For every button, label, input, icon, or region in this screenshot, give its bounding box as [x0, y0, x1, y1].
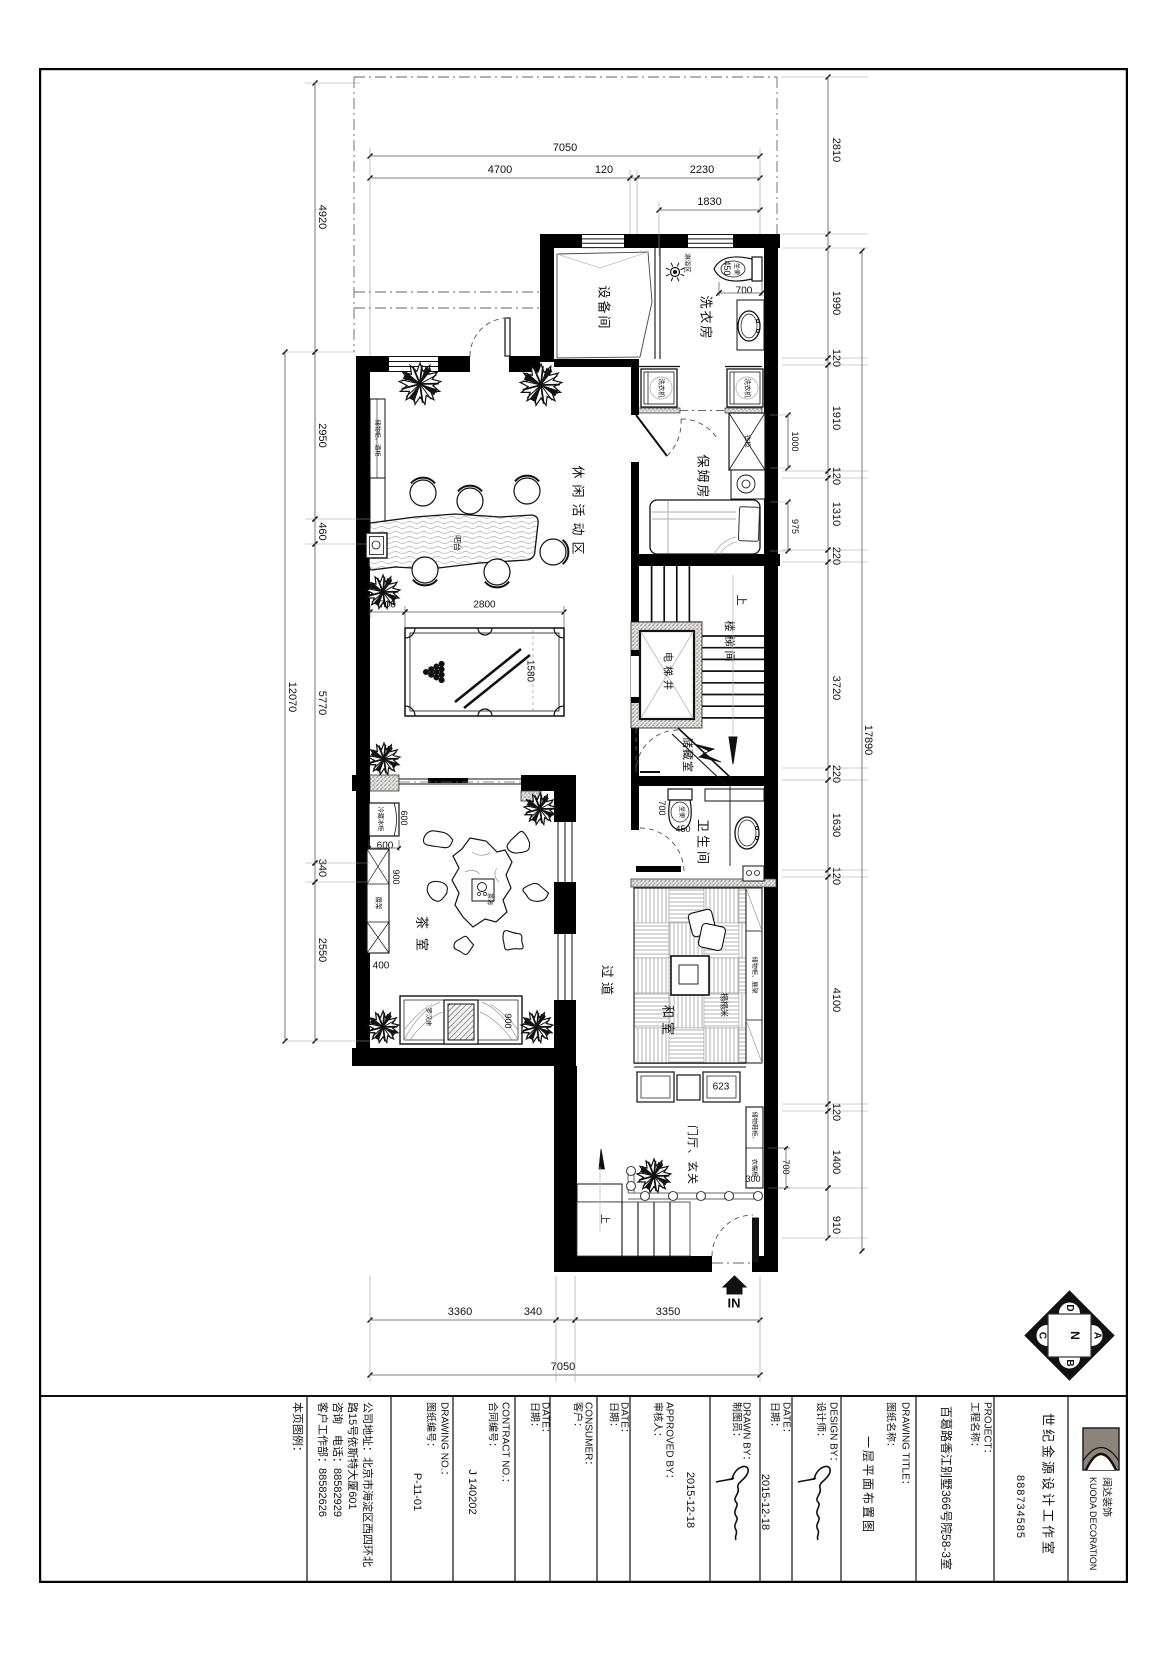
svg-text:客户工作部：88582626: 客户工作部：88582626	[316, 1402, 330, 1517]
svg-text:3360: 3360	[448, 1306, 472, 1318]
svg-text:340: 340	[524, 1306, 542, 1318]
svg-text:900: 900	[503, 1013, 513, 1028]
svg-text:1990: 1990	[830, 291, 842, 315]
svg-text:2800: 2800	[473, 600, 496, 611]
svg-text:坐便: 坐便	[678, 806, 686, 818]
svg-text:900: 900	[391, 869, 401, 884]
svg-text:坐便: 坐便	[733, 263, 741, 275]
svg-text:审核人：: 审核人：	[652, 1402, 665, 1442]
svg-text:700: 700	[736, 286, 753, 297]
svg-text:120: 120	[830, 467, 842, 485]
svg-text:DATE：: DATE：	[540, 1402, 551, 1438]
svg-text:1400: 1400	[830, 1150, 842, 1174]
svg-text:和室: 和室	[661, 1005, 676, 1039]
svg-text:2230: 2230	[690, 164, 714, 176]
svg-text:700: 700	[657, 800, 667, 815]
svg-text:120: 120	[830, 867, 842, 885]
svg-text:门厅、玄关: 门厅、玄关	[686, 1125, 700, 1185]
svg-text:设计师：: 设计师：	[815, 1402, 828, 1442]
svg-text:客户：: 客户：	[572, 1402, 585, 1432]
svg-text:B: B	[1064, 1359, 1075, 1366]
svg-text:A: A	[1092, 1332, 1103, 1339]
svg-text:榻榻米: 榻榻米	[720, 993, 730, 1017]
svg-text:制图员：: 制图员：	[731, 1402, 744, 1442]
svg-text:450: 450	[722, 260, 732, 275]
svg-text:日期：: 日期：	[769, 1402, 781, 1432]
svg-text:DATE：: DATE：	[619, 1402, 630, 1438]
svg-text:5770: 5770	[316, 691, 328, 715]
svg-text:975: 975	[790, 519, 800, 534]
svg-text:400: 400	[373, 961, 390, 972]
svg-text:2015-12-18: 2015-12-18	[759, 1474, 771, 1530]
svg-text:百葛路香江别墅366号院58-3室: 百葛路香江别墅366号院58-3室	[939, 1406, 954, 1570]
svg-text:淋浴区: 淋浴区	[684, 253, 693, 273]
svg-text:300: 300	[745, 1174, 760, 1184]
svg-text:路15号依斯特大厦601: 路15号依斯特大厦601	[346, 1402, 360, 1510]
svg-text:KUODA DECORATION: KUODA DECORATION	[1088, 1477, 1098, 1570]
svg-text:DRAWING TITLE：: DRAWING TITLE：	[900, 1402, 911, 1490]
svg-text:3350: 3350	[656, 1306, 680, 1318]
svg-text:楼梯间: 楼梯间	[723, 621, 737, 666]
svg-text:图纸名称：: 图纸名称：	[885, 1402, 898, 1452]
svg-text:2015-12-18: 2015-12-18	[684, 1472, 696, 1528]
svg-text:120: 120	[830, 1103, 842, 1121]
svg-text:电梯井: 电梯井	[662, 652, 675, 694]
svg-text:1580: 1580	[525, 660, 536, 683]
svg-text:DRAWING NO.：: DRAWING NO.：	[439, 1402, 450, 1481]
svg-text:CONSUMER：: CONSUMER：	[583, 1402, 594, 1470]
svg-text:888734585: 888734585	[1014, 1475, 1026, 1539]
svg-text:J 140202: J 140202	[466, 1469, 478, 1514]
svg-text:120: 120	[595, 164, 613, 176]
svg-text:460: 460	[316, 522, 328, 540]
svg-text:咨询 电话：88582929: 咨询 电话：88582929	[331, 1402, 345, 1517]
svg-text:设备间: 设备间	[597, 285, 612, 330]
svg-text:APPROVED BY：: APPROVED BY：	[664, 1402, 675, 1484]
svg-text:储物柜、展架: 储物柜、展架	[751, 956, 759, 993]
svg-text:储物鞋柜、: 储物鞋柜、	[751, 1112, 759, 1143]
svg-text:3720: 3720	[830, 676, 842, 700]
svg-text:展架: 展架	[375, 897, 383, 911]
svg-text:日期：: 日期：	[529, 1402, 541, 1432]
svg-text:700: 700	[379, 600, 396, 611]
svg-text:图纸编号：: 图纸编号：	[425, 1402, 438, 1452]
svg-text:阔达装饰: 阔达装饰	[1101, 1477, 1114, 1517]
svg-text:本页图例：: 本页图例：	[291, 1402, 305, 1457]
svg-text:4920: 4920	[316, 205, 328, 229]
svg-text:600: 600	[399, 810, 409, 825]
svg-text:1830: 1830	[697, 196, 721, 208]
svg-text:过道: 过道	[600, 965, 615, 999]
svg-text:DATE：: DATE：	[781, 1402, 792, 1438]
svg-text:上: 上	[735, 595, 748, 606]
svg-text:1000: 1000	[790, 431, 800, 451]
svg-text:衣柜: 衣柜	[744, 435, 753, 449]
svg-text:7050: 7050	[553, 142, 577, 154]
svg-text:卫生间: 卫生间	[696, 819, 711, 867]
svg-text:4700: 4700	[488, 164, 512, 176]
svg-text:2950: 2950	[316, 423, 328, 447]
svg-text:储藏室: 储藏室	[681, 737, 695, 773]
svg-text:保姆房: 保姆房	[696, 454, 711, 499]
svg-text:日期：: 日期：	[608, 1402, 620, 1432]
svg-text:D: D	[1064, 1304, 1075, 1311]
svg-text:4100: 4100	[830, 988, 842, 1012]
svg-text:12070: 12070	[286, 682, 298, 713]
svg-text:休闲活动区: 休闲活动区	[571, 465, 586, 560]
svg-text:220: 220	[830, 547, 842, 565]
svg-text:洗衣机: 洗衣机	[658, 378, 667, 398]
svg-text:2550: 2550	[316, 938, 328, 962]
svg-text:1310: 1310	[830, 502, 842, 526]
svg-text:洗衣房: 洗衣房	[699, 295, 714, 340]
svg-text:储物柜、酒柜: 储物柜、酒柜	[374, 419, 382, 456]
svg-text:IN: IN	[728, 1296, 741, 1311]
svg-text:7050: 7050	[551, 1361, 575, 1373]
svg-text:340: 340	[316, 859, 328, 877]
svg-text:罗汉床: 罗汉床	[425, 1008, 433, 1027]
svg-text:450: 450	[675, 824, 690, 834]
svg-text:N: N	[1068, 1331, 1082, 1340]
svg-text:CONTRACT NO.：: CONTRACT NO.：	[500, 1402, 511, 1488]
svg-text:合同编号：: 合同编号：	[487, 1402, 500, 1452]
svg-text:910: 910	[830, 1216, 842, 1234]
svg-text:世纪金源设计工作室: 世纪金源设计工作室	[1041, 1413, 1056, 1557]
svg-text:洗衣机: 洗衣机	[744, 378, 753, 398]
svg-text:工程名称：: 工程名称：	[969, 1402, 982, 1452]
svg-text:茶海: 茶海	[486, 893, 494, 905]
svg-text:茶室: 茶室	[415, 916, 430, 960]
svg-text:吧台: 吧台	[453, 535, 463, 551]
svg-text:公司地址：北京市海淀区西四环北: 公司地址：北京市海淀区西四环北	[361, 1402, 375, 1567]
svg-text:1910: 1910	[830, 406, 842, 430]
svg-text:冷藏冰柜: 冷藏冰柜	[377, 807, 385, 832]
svg-text:P-11-01: P-11-01	[411, 1473, 423, 1511]
svg-text:C: C	[1037, 1332, 1048, 1339]
svg-text:2810: 2810	[830, 138, 842, 162]
svg-text:DESIGN BY：: DESIGN BY：	[828, 1402, 839, 1466]
svg-text:17890: 17890	[862, 725, 874, 756]
svg-text:一层平面布置图: 一层平面布置图	[861, 1436, 875, 1534]
svg-text:PROJECT：: PROJECT：	[982, 1402, 993, 1459]
svg-text:220: 220	[830, 765, 842, 783]
svg-text:623: 623	[713, 1082, 730, 1093]
svg-text:1630: 1630	[830, 813, 842, 837]
